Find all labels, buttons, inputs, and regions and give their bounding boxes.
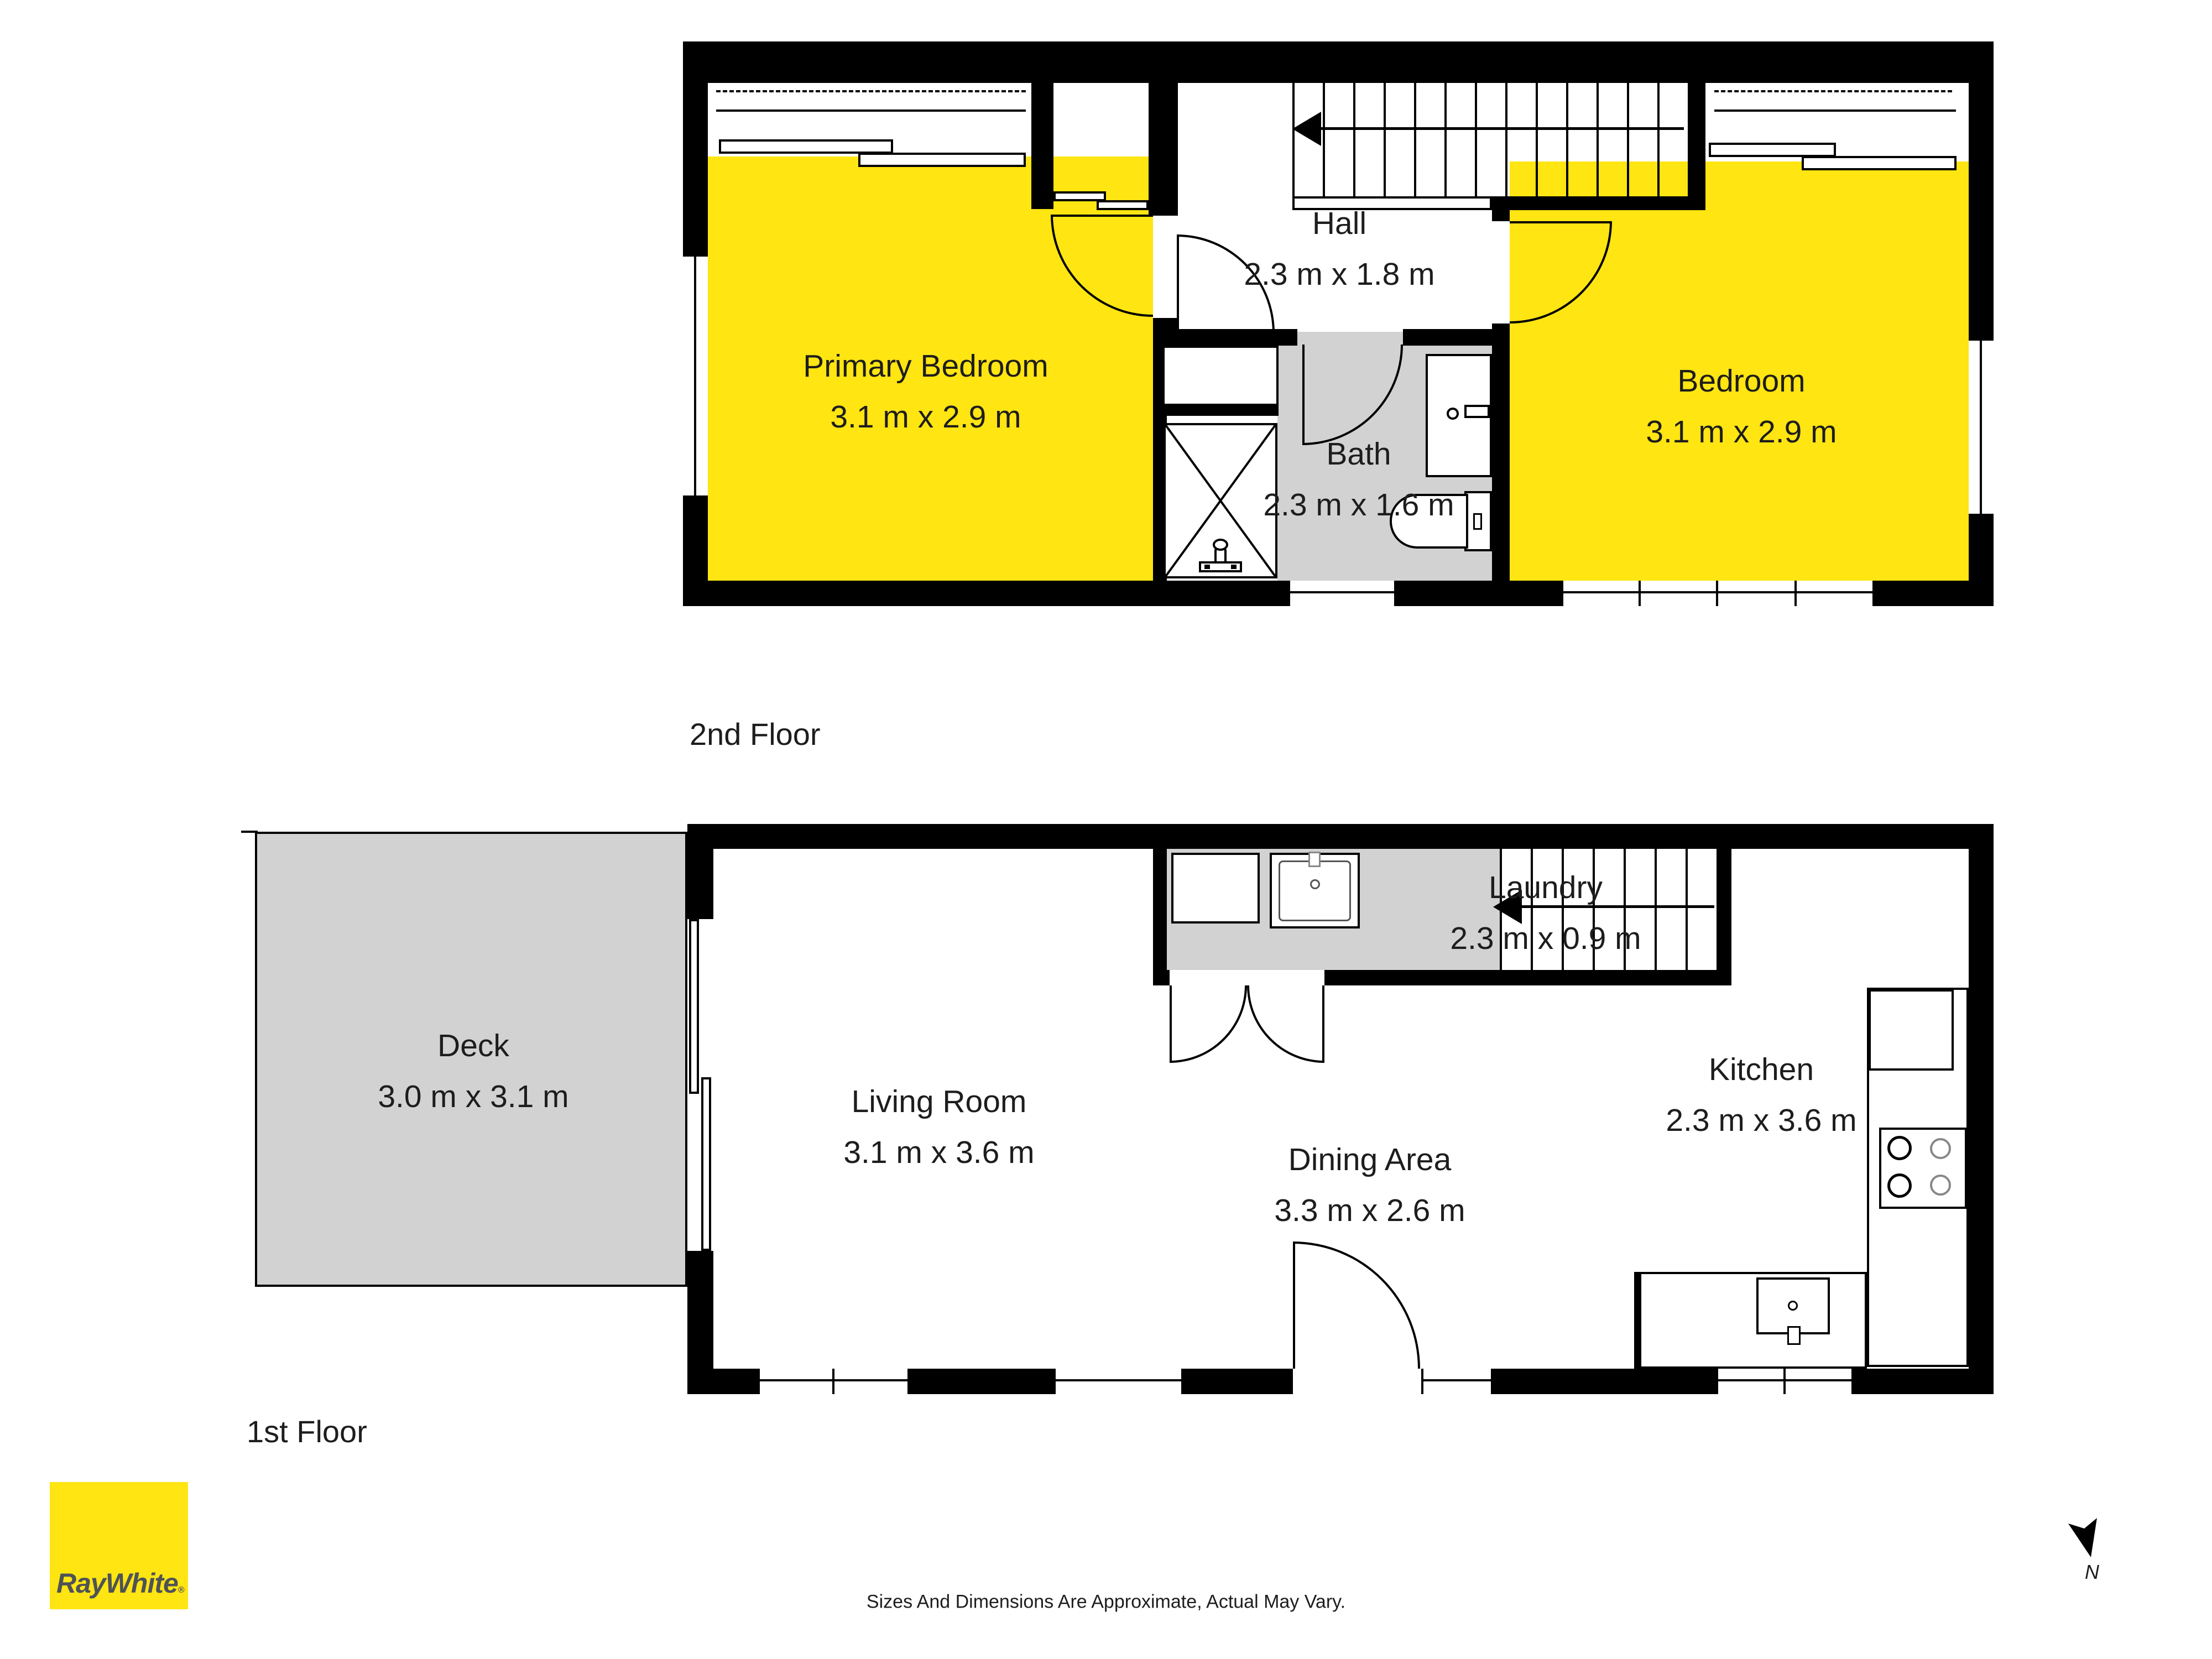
logo-brand: RayWhite [56,1568,178,1599]
sf-wall-bottom-2 [1396,581,1561,606]
room-label-bedroom: Bedroom 3.1 m x 2.9 m [1646,356,1837,457]
ff-slider-panel-1 [689,919,699,1094]
sf-wall-hall-west-upper [1149,83,1178,216]
sf-wall-right-upper [1969,41,1994,338]
room-dims: 3.1 m x 3.6 m [843,1127,1034,1178]
room-label-kitchen: Kitchen 2.3 m x 3.6 m [1666,1044,1856,1146]
sf-wall-stairs-east [1690,83,1705,196]
ff-window-dining-glass [1423,1379,1491,1381]
room-name: Laundry [1450,862,1641,913]
room-label-laundry: Laundry 2.3 m x 0.9 m [1450,862,1641,964]
sf-wall-bath-bedroom-upper [1492,210,1510,221]
raywhite-logo-text: RayWhite® [56,1567,184,1599]
sf-shower [1164,423,1277,578]
sf-window-right-glass [1980,341,1982,514]
ff-wall-laundry-south-left [1153,970,1170,985]
ff-wall-stairs-east [1718,849,1731,970]
room-name: Bedroom [1646,356,1837,406]
sf-bedroom-wardrobe-dashed-line [1714,90,1952,92]
ff-burner-3-icon [1930,1138,1951,1159]
ff-window-living-2 [1053,1369,1183,1394]
sf-wall-bath-bedroom-lower [1492,324,1510,581]
ff-kitchen-counter-bottom [1639,1272,1867,1369]
ff-kitchen-fridge [1869,989,1954,1071]
ff-window-living-1-mullion [832,1369,834,1394]
room-dims: 2.3 m x 3.6 m [1666,1095,1856,1146]
ff-wall-bottom-5 [1854,1369,1994,1394]
sf-bedroom-wardrobe-front-line [1714,109,1956,112]
ff-wall-laundry-west [1153,849,1167,970]
sf-bedroom-sliding-panel-1 [1709,143,1836,157]
sf-wall-wardrobe-divider [1031,83,1053,209]
sf-wall-top [683,41,1994,83]
room-label-dining-area: Dining Area 3.3 m x 2.6 m [1274,1134,1465,1236]
ff-laundry-tap-icon [1308,852,1321,867]
ff-sink-faucet-icon [1788,1301,1798,1311]
first-floor-label: 1st Floor [247,1413,367,1449]
north-arrow-icon [2058,1509,2119,1564]
sf-stairs-arrow-line [1316,127,1684,130]
room-dims: 2.3 m x 1.6 m [1263,479,1454,530]
ff-wall-laundry-south-right [1324,970,1731,985]
disclaimer-text: Sizes And Dimensions Are Approximate, Ac… [867,1592,1345,1613]
ff-french-door-left [1170,985,1247,1063]
ff-wall-bottom-3 [1183,1369,1293,1394]
ff-burner-1-icon [1887,1136,1912,1160]
sf-wall-right-lower [1969,516,1994,581]
sf-wardrobe-sliding-panel-1 [719,139,893,154]
sf-wall-under-stairs [1492,196,1705,210]
ff-wall-top [687,824,1994,849]
sf-bath-cabinet-wall [1162,406,1279,416]
ff-window-kitchen-mullion [1783,1369,1786,1394]
room-label-living-room: Living Room 3.1 m x 3.6 m [843,1076,1034,1178]
ff-wall-left-upper [687,824,713,919]
north-label: N [2085,1561,2099,1584]
sf-wardrobe-front-line [716,109,1026,112]
raywhite-logo: RayWhite® [50,1482,188,1609]
sf-bath-cabinet [1162,346,1279,406]
ff-wall-left-lower [687,1251,713,1369]
sf-window-left-glass [694,257,696,495]
room-label-deck: Deck 3.0 m x 3.1 m [378,1020,568,1122]
ff-laundry-faucet-icon [1310,879,1320,889]
ff-window-living-2-glass [1056,1379,1181,1381]
ff-french-door-gap [1170,970,1324,985]
room-dims: 3.3 m x 2.6 m [1274,1185,1465,1236]
room-name: Primary Bedroom [803,341,1048,392]
logo-registered-mark: ® [178,1585,184,1595]
room-name: Bath [1263,429,1454,479]
room-name: Kitchen [1666,1044,1856,1095]
sf-stairs-treads [1292,83,1690,196]
sf-window-bedroom-mullion-1 [1639,581,1641,606]
ff-entry-door [1293,1241,1420,1369]
ff-window-dining [1421,1369,1493,1394]
sf-window-bath-glass [1290,591,1394,593]
ff-burner-2-icon [1887,1173,1912,1198]
ff-burner-4-icon [1930,1175,1951,1196]
ff-laundry-cabinet [1171,853,1260,924]
sf-vanity-faucet-icon [1447,408,1459,420]
room-label-bath: Bath 2.3 m x 1.6 m [1263,429,1454,530]
room-dims: 3.1 m x 2.9 m [1646,406,1837,457]
sf-vanity-handle-icon [1464,405,1490,418]
sf-window-bedroom-mullion-3 [1794,581,1797,606]
ff-wall-bottom-1 [687,1369,758,1394]
sf-wall-left-upper [683,41,708,254]
shower-glass-x-icon [1166,425,1275,576]
ff-deck-notch-line [241,831,258,833]
ff-slider-panel-2 [701,1077,711,1251]
sf-wardrobe-sliding-panel-2 [858,153,1026,167]
second-floor-label: 2nd Floor [690,716,821,752]
shower-head-icon [1200,540,1241,571]
ff-sink-tap-icon [1787,1326,1801,1345]
ff-french-door-right [1247,985,1324,1063]
room-name: Living Room [843,1076,1034,1127]
room-dims: 2.3 m x 0.9 m [1450,913,1641,964]
room-name: Hall [1244,198,1434,249]
ff-wall-bottom-4 [1493,1369,1716,1394]
ff-wall-right [1969,824,1994,1394]
room-label-hall: Hall 2.3 m x 1.8 m [1244,198,1434,300]
room-name: Dining Area [1274,1134,1465,1185]
sf-closet-sliding-panel-2 [1097,200,1149,210]
room-dims: 3.0 m x 3.1 m [378,1071,568,1122]
ff-laundry-tub-basin [1279,860,1351,921]
sf-window-bedroom-mullion-2 [1716,581,1718,606]
room-label-primary-bedroom: Primary Bedroom 3.1 m x 2.9 m [803,341,1048,442]
sf-bedroom-sliding-panel-2 [1802,156,1957,170]
floorplan-sheet: Primary Bedroom 3.1 m x 2.9 m Hall 2.3 m… [0,0,2212,1659]
sf-toilet-flush-icon [1473,513,1482,530]
room-dims: 3.1 m x 2.9 m [803,392,1048,442]
sf-wall-bottom-1 [683,581,1288,606]
sf-wardrobe-dashed-line [716,90,1026,92]
sf-stairs-arrow-head-icon [1292,112,1321,146]
sf-window-bath [1288,581,1396,606]
sf-wall-bottom-3 [1875,581,1994,606]
room-name: Deck [378,1020,568,1071]
sf-wall-left-lower [683,498,708,581]
room-dims: 2.3 m x 1.8 m [1244,249,1434,300]
ff-wall-bottom-2 [910,1369,1053,1394]
